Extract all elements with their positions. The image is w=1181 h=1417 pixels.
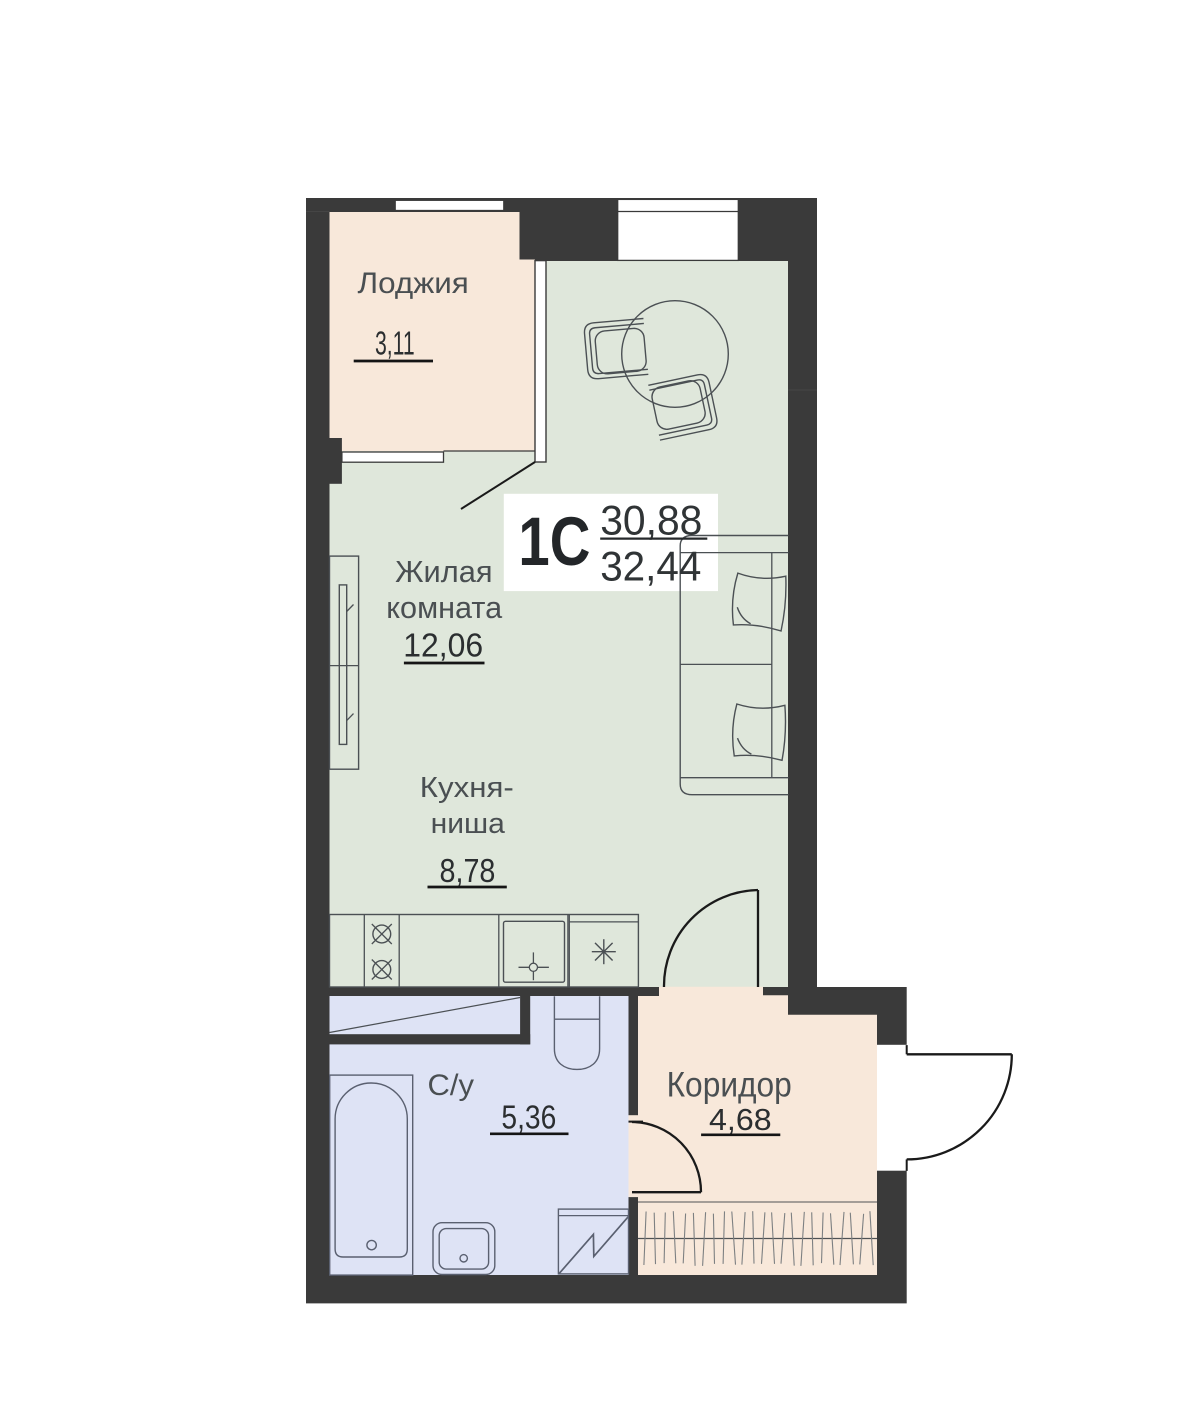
svg-text:Лоджия: Лоджия — [358, 267, 469, 300]
svg-text:3,11: 3,11 — [375, 325, 415, 362]
svg-text:Кухня-: Кухня- — [420, 772, 514, 804]
svg-text:30,88: 30,88 — [600, 497, 702, 544]
svg-text:5,36: 5,36 — [501, 1099, 556, 1136]
svg-text:1С: 1С — [518, 503, 590, 580]
svg-text:Жилая: Жилая — [395, 554, 493, 589]
svg-text:12,06: 12,06 — [403, 627, 483, 664]
svg-text:32,44: 32,44 — [600, 542, 701, 589]
svg-text:Коридор: Коридор — [667, 1066, 792, 1105]
svg-text:4,68: 4,68 — [709, 1102, 772, 1137]
svg-text:С/у: С/у — [428, 1069, 475, 1102]
svg-text:ниша: ниша — [431, 808, 506, 840]
svg-text:комната: комната — [386, 590, 503, 625]
svg-text:8,78: 8,78 — [440, 852, 496, 889]
